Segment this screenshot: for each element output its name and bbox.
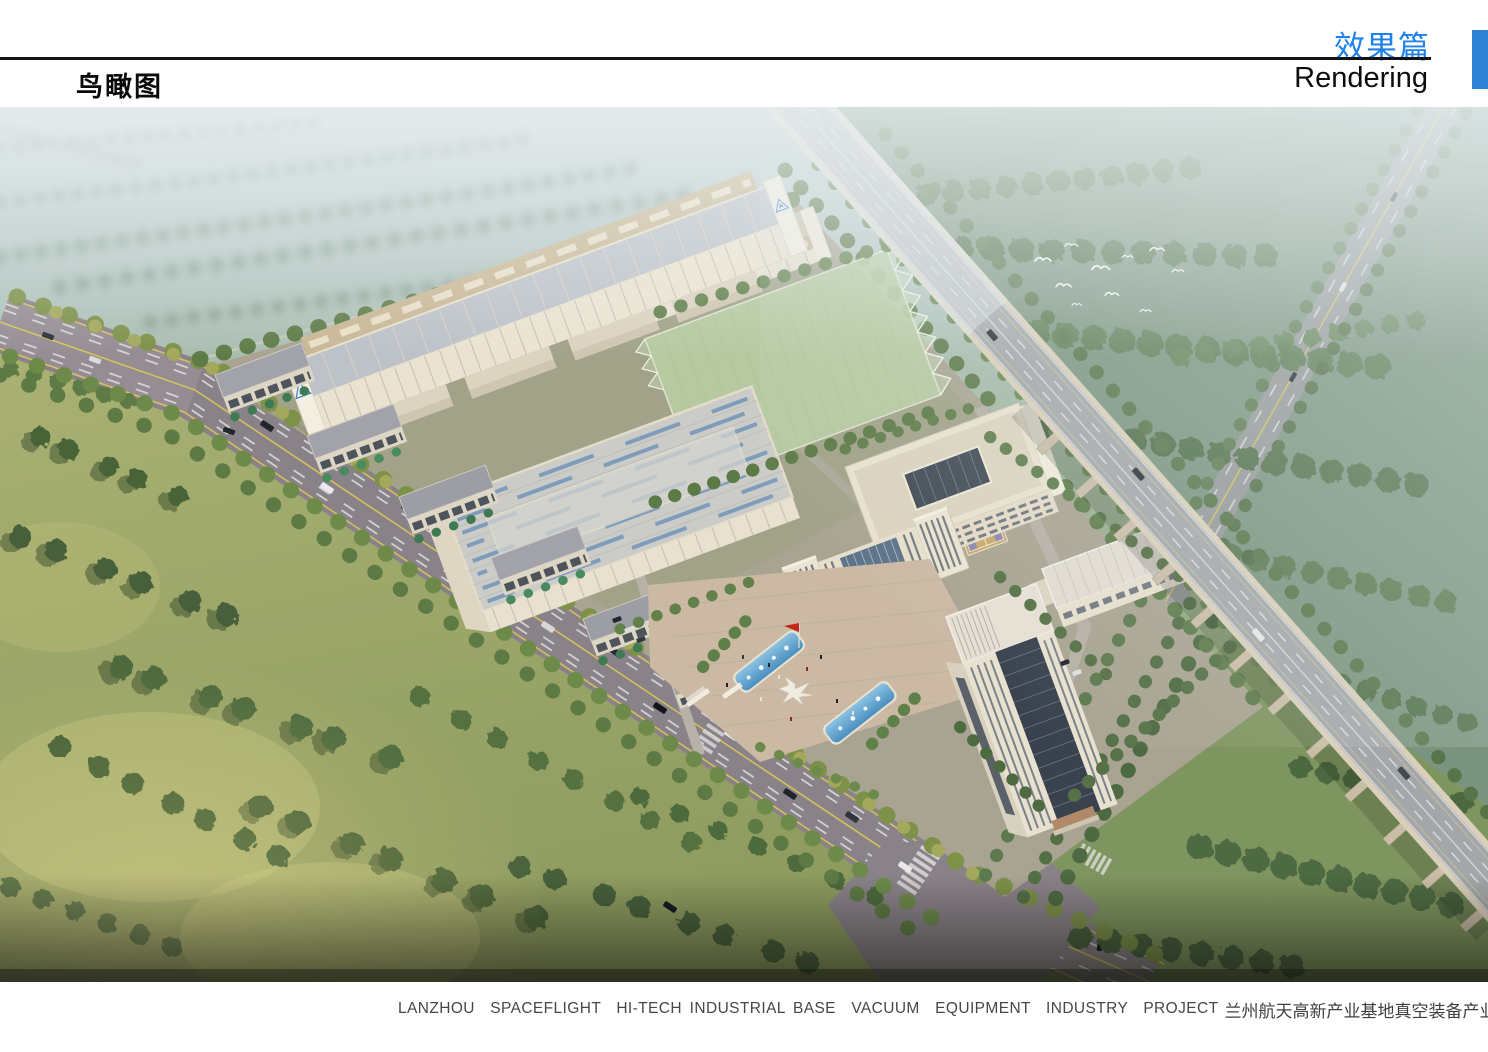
project-caption-en: LANZHOU SPACEFLIGHT HI-TECH INDUSTRIAL B… xyxy=(398,1000,1218,1018)
presentation-page: 效果篇 Rendering 鸟瞰图 xyxy=(0,0,1488,1052)
aerial-rendering-image xyxy=(0,107,1488,982)
header-rule xyxy=(0,57,1431,60)
project-caption-zh: 兰州航天高新产业基地真空装备产业园项目 xyxy=(1224,997,1488,1022)
header-accent-block xyxy=(1472,30,1488,89)
page-title: 鸟瞰图 xyxy=(76,65,163,104)
page-footer: LANZHOU SPACEFLIGHT HI-TECH INDUSTRIAL B… xyxy=(398,997,1488,1021)
section-title-en: Rendering xyxy=(1294,62,1428,95)
section-title-zh: 效果篇 xyxy=(1334,22,1430,67)
